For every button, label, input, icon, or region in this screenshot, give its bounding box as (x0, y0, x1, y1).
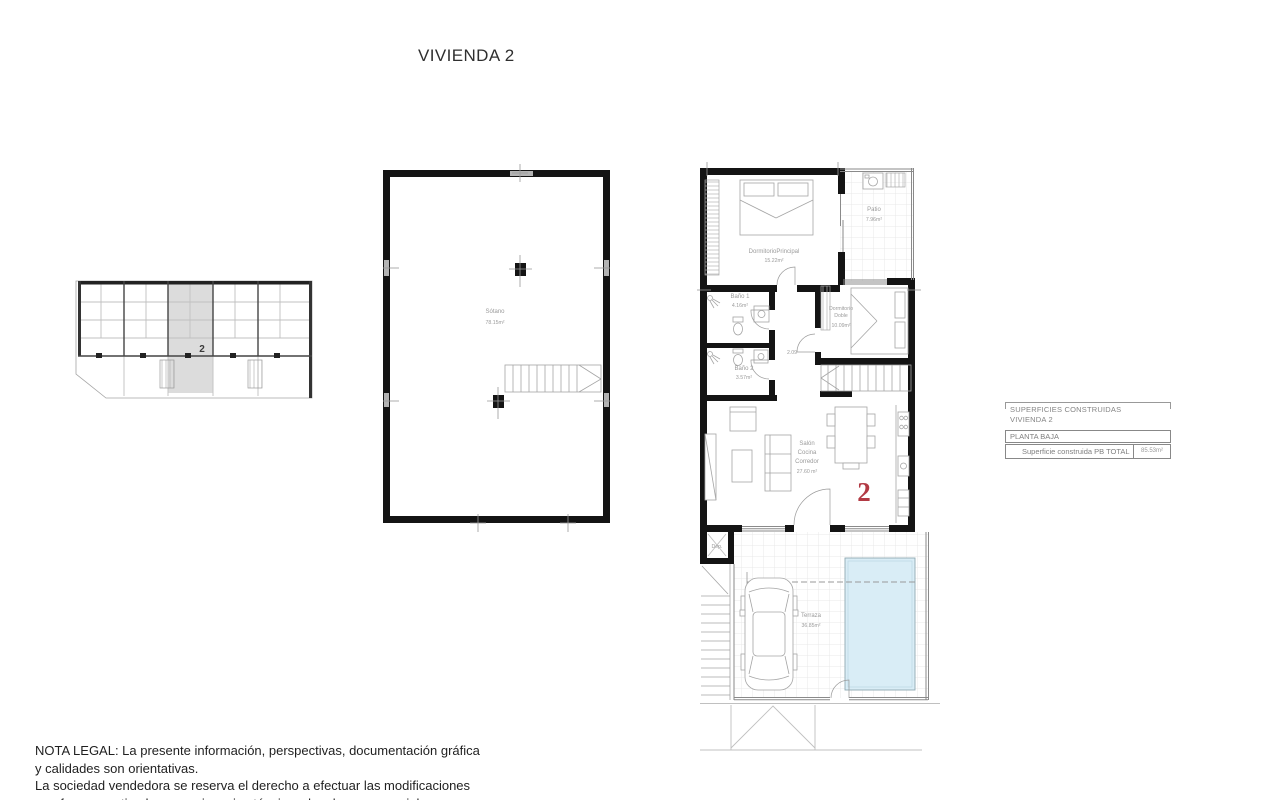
page-title: VIVIENDA 2 (418, 46, 515, 66)
exterior-stairs (701, 564, 730, 700)
legend-section-row: PLANTA BAJA (1005, 430, 1171, 443)
pasillo-cota: 2.09 (787, 350, 797, 356)
basement-room-name: Sótano (485, 309, 505, 315)
legal-note-line4: que fuesen motivadas por exigencias técn… (35, 795, 480, 800)
patio-area: 7.96m² (866, 217, 882, 223)
kitchen-icons (896, 405, 909, 523)
driveway (731, 705, 815, 750)
ground-floor-plan: DormitorioPrincipal 15.22m² Patio 7.96m²… (697, 160, 942, 752)
legal-note-line3: La sociedad vendedora se reserva el dere… (35, 777, 480, 795)
terraza-area: 36.85m² (801, 623, 820, 629)
surface-legend: SUPERFICIES CONSTRUIDAS VIVIENDA 2 PLANT… (1005, 402, 1171, 459)
salon-name2: Cocina (798, 450, 817, 456)
interior-stairs (821, 365, 911, 391)
pool (845, 558, 915, 690)
dormitorio-doble-name1: Dormitorio (829, 306, 853, 312)
plan-sheet: VIVIENDA 2 (0, 0, 1280, 800)
main-bed-icon (740, 180, 813, 235)
dining-table-icon (827, 407, 875, 469)
dep-name: Dep. (712, 544, 723, 550)
legal-note-line1: NOTA LEGAL: La presente información, per… (35, 742, 480, 760)
legend-header: SUPERFICIES CONSTRUIDAS VIVIENDA 2 (1005, 402, 1171, 428)
legend-header-line1: SUPERFICIES CONSTRUIDAS (1010, 405, 1166, 415)
legal-note: NOTA LEGAL: La presente información, per… (35, 742, 480, 800)
dormitorio-principal-name: DormitorioPrincipal (749, 249, 800, 255)
bano2-name: Baño 2 (734, 366, 754, 372)
bath2-fixtures (708, 349, 769, 366)
sofa-icons (705, 407, 791, 500)
site-key-plan: 2 (68, 276, 318, 408)
patio-name: Patio (867, 207, 881, 213)
dormitorio-doble-name2: Doble (834, 313, 848, 319)
legal-note-line2: y calidades son orientativas. (35, 760, 480, 778)
basement-columns (487, 255, 532, 419)
car-icon (740, 578, 798, 690)
key-plan-highlight-unit (168, 281, 213, 393)
unit-number-label: 2 (857, 477, 871, 507)
salon-area: 27.60 m² (797, 469, 818, 475)
bano2-area: 3.57m² (736, 375, 752, 381)
basement-axis-ticks (383, 164, 610, 532)
basement-label: Sótano 78.15m² (485, 309, 505, 326)
terraza-name: Terraza (801, 613, 822, 619)
basement-walls (383, 170, 610, 523)
basement-stairs (505, 365, 601, 392)
dormitorio-doble-area: 10.09m² (831, 323, 850, 329)
salon-name3: Corredor (795, 459, 819, 465)
bano1-name: Baño 1 (730, 294, 750, 300)
key-plan-unit-number: 2 (199, 344, 205, 355)
basement-room-area: 78.15m² (485, 320, 504, 326)
legend-header-line2: VIVIENDA 2 (1010, 415, 1166, 425)
basement-plan: Sótano 78.15m² (383, 163, 615, 533)
legend-total-value: 85.53m² (1133, 445, 1170, 458)
salon-name1: Salón (799, 441, 814, 447)
legend-total-label: Superficie construida PB TOTAL (1006, 445, 1133, 458)
double-bed-icon (851, 288, 908, 354)
legend-total-row: Superficie construida PB TOTAL 85.53m² (1005, 444, 1171, 459)
bano1-area: 4.16m² (732, 303, 748, 309)
dormitorio-principal-area: 15.22m² (764, 258, 783, 264)
bath1-fixtures (708, 296, 770, 336)
